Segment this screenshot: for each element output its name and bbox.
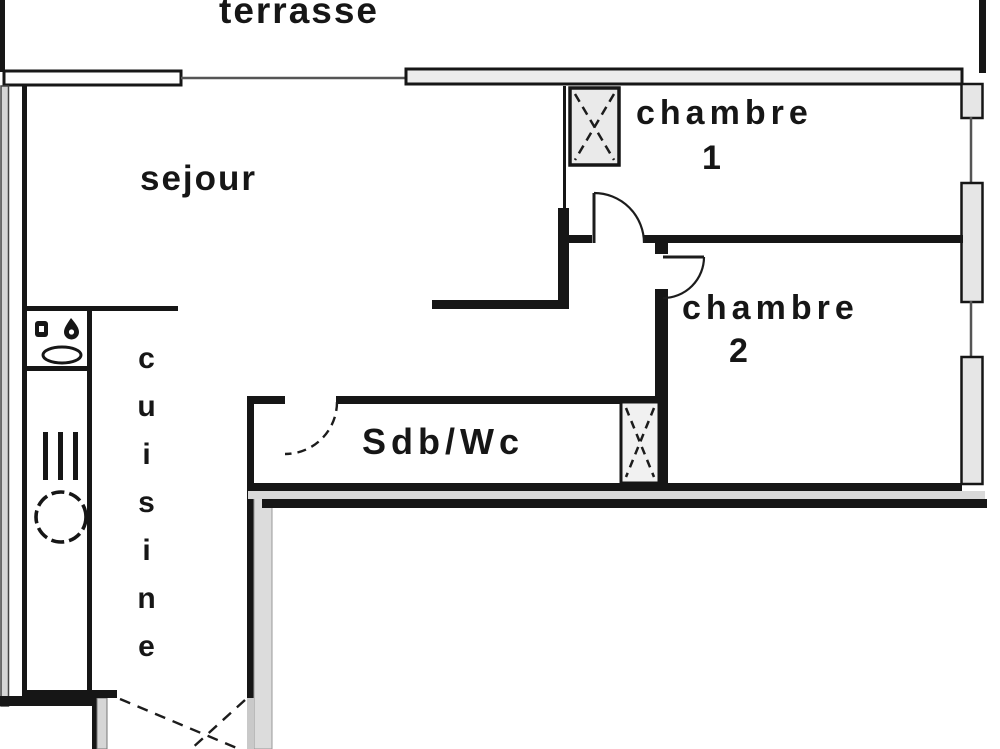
chambre-divider-wall <box>644 235 963 243</box>
left-outer-wall <box>1 86 9 706</box>
faucet-knob-hole <box>39 326 44 332</box>
kitchen-counter-divider <box>27 366 88 371</box>
kitchen-fixtures <box>35 318 86 542</box>
sdb-door-arc-icon <box>285 402 337 454</box>
kitchen-north-line <box>22 306 178 311</box>
shafts <box>570 88 659 483</box>
chambre2-west-wall-stub <box>655 243 668 254</box>
chambre1-door-arc-icon <box>594 193 644 243</box>
sink-basin-icon <box>43 347 81 363</box>
entrance-left-wall-cavity <box>97 698 107 749</box>
south-wall-lower-line <box>262 499 987 508</box>
water-drop-hole <box>69 329 74 334</box>
sejour-west-wall <box>22 84 27 692</box>
floorplan: terrasse sejour chambre 1 chambre 2 Sdb/… <box>0 0 1000 749</box>
entrance-left-wall <box>92 695 97 749</box>
top-wall-left-segment <box>4 71 181 85</box>
right-wall <box>962 84 983 484</box>
terrace-right-wall <box>979 0 986 73</box>
drainer-bars-icon <box>43 432 48 480</box>
right-wall-pier-middle <box>962 183 983 302</box>
top-wall-right-segment <box>406 69 962 84</box>
room-label-sejour: sejour <box>140 161 257 196</box>
sdb-north-wall-right <box>336 396 660 404</box>
water-drop-icon <box>64 318 79 340</box>
sejour-south-wall <box>432 300 569 309</box>
south-wall-upper-line <box>248 483 962 491</box>
room-label-cuisine: cuisine <box>131 342 161 678</box>
sejour-east-wall <box>558 208 569 309</box>
room-label-terrasse: terrasse <box>219 0 379 29</box>
entrance-right-wall <box>247 396 254 698</box>
drainer-bars-icon <box>58 432 63 480</box>
entrance-right-wall-lower <box>247 698 254 749</box>
terrace-left-wall <box>0 0 5 72</box>
sejour-east-wall-upper <box>563 86 566 210</box>
entrance-right-wall-cavity <box>254 497 272 749</box>
room-number-chambre2: 2 <box>729 334 748 368</box>
kitchen-south-wall <box>22 690 117 698</box>
right-wall-pier-bottom <box>962 357 983 484</box>
room-label-sdb-wc: Sdb/Wc <box>362 424 524 460</box>
right-wall-pier-top <box>962 84 983 118</box>
south-wall-cavity <box>248 491 985 499</box>
drainer-bars-icon <box>73 432 78 480</box>
doors <box>120 193 704 749</box>
room-label-chambre1: chambre <box>636 96 813 130</box>
hob-circle-icon <box>36 492 86 542</box>
chambre-divider-wall-stub <box>566 235 592 243</box>
room-number-chambre1: 1 <box>702 141 721 175</box>
shaft-box-icon <box>621 402 659 483</box>
room-label-chambre2: chambre <box>682 291 859 325</box>
